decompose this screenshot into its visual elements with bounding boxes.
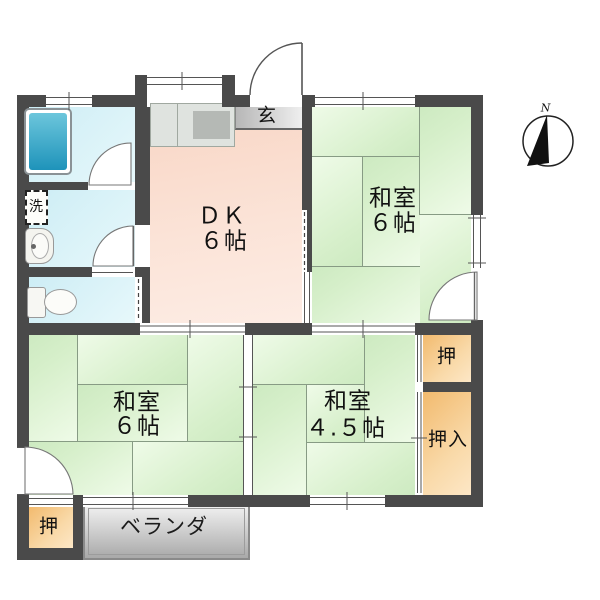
washroom-door-opening bbox=[135, 225, 150, 267]
window-veranda bbox=[83, 495, 188, 507]
tatami-mat bbox=[78, 335, 188, 385]
wall-segment bbox=[92, 95, 135, 107]
tatami-line bbox=[132, 442, 133, 495]
kitchen-sink bbox=[193, 111, 230, 139]
tatami-line bbox=[420, 214, 471, 215]
wall-segment bbox=[302, 95, 315, 107]
door-east-opening bbox=[471, 268, 483, 320]
wall-segment bbox=[222, 75, 235, 107]
washitsu-sw-size-label: ６帖 bbox=[113, 416, 161, 439]
closet-se-doors bbox=[415, 392, 423, 493]
tatami-line bbox=[77, 335, 78, 442]
tatami-mat bbox=[253, 385, 307, 495]
tatami-line bbox=[312, 266, 420, 267]
tatami-mat bbox=[188, 335, 243, 442]
floorplan: ＤＫ ６帖 和室 ６帖 和室 ６帖 和室 ４.５帖 押 押入 押 ベランダ 玄 … bbox=[0, 0, 600, 600]
wall-segment bbox=[135, 107, 150, 225]
closet-sw-doors bbox=[29, 495, 73, 507]
wall-segment bbox=[135, 267, 150, 277]
wall-segment bbox=[142, 277, 150, 323]
entrance-door-arc bbox=[250, 43, 302, 95]
tatami-line bbox=[419, 107, 420, 215]
dk-name-label: ＤＫ bbox=[198, 206, 246, 229]
toilet-entry bbox=[92, 267, 133, 277]
genkan-label: 玄 bbox=[257, 107, 277, 126]
tatami-mat bbox=[307, 443, 415, 495]
closet-se-label: 押入 bbox=[428, 431, 468, 450]
tatami-mat bbox=[312, 267, 420, 323]
washitsu-ne-size-label: ６帖 bbox=[369, 213, 417, 236]
bathroom-door-opening bbox=[88, 182, 135, 190]
wall-recess-toilet bbox=[135, 277, 142, 320]
toilet-bowl bbox=[44, 289, 77, 315]
compass-icon bbox=[523, 115, 573, 166]
wall-segment bbox=[302, 107, 312, 210]
tatami-line bbox=[29, 441, 243, 442]
fusuma-ne-se bbox=[312, 323, 415, 335]
tatami-mat bbox=[29, 335, 78, 442]
wall-segment bbox=[29, 267, 92, 277]
laundry-label: 洗 bbox=[29, 200, 44, 214]
tatami-mat bbox=[29, 442, 133, 495]
wall-segment bbox=[471, 95, 483, 215]
wall-segment bbox=[235, 95, 250, 107]
tatami-mat bbox=[420, 107, 471, 215]
closet-sw-label: 押 bbox=[39, 518, 59, 537]
wall-segment bbox=[29, 323, 140, 335]
tatami-line bbox=[362, 157, 363, 267]
tatami-line bbox=[312, 156, 420, 157]
washitsu-sw-name-label: 和室 bbox=[113, 392, 161, 415]
veranda-label: ベランダ bbox=[120, 517, 208, 538]
window-bathroom bbox=[46, 95, 92, 107]
closet-ne-doors bbox=[415, 335, 423, 382]
tatami-line bbox=[307, 442, 415, 443]
bathtub-water bbox=[29, 113, 67, 170]
wall-segment bbox=[73, 495, 83, 560]
fusuma-dk-ne bbox=[302, 272, 312, 323]
wall-segment bbox=[415, 323, 473, 335]
tatami-line bbox=[253, 384, 365, 385]
door-west-opening bbox=[17, 447, 29, 495]
tatami-line bbox=[78, 384, 188, 385]
window-east bbox=[471, 215, 483, 268]
wall-segment bbox=[29, 95, 46, 107]
wall-segment bbox=[471, 318, 483, 507]
wall-segment bbox=[307, 210, 312, 272]
compass-north-label: N bbox=[541, 103, 552, 114]
washitsu-ne-name-label: 和室 bbox=[369, 188, 417, 211]
fusuma-dk-sw bbox=[140, 323, 245, 335]
tatami-mat bbox=[133, 442, 243, 495]
washitsu-se-size-label: ４.５帖 bbox=[306, 418, 386, 441]
wall-segment bbox=[385, 495, 483, 507]
dk-size-label: ６帖 bbox=[200, 231, 248, 254]
window-washitsu-se bbox=[310, 495, 385, 507]
washbasin-faucet bbox=[31, 244, 36, 249]
tatami-mat bbox=[253, 335, 365, 385]
tatami-line bbox=[187, 335, 188, 442]
tatami-mat bbox=[312, 107, 420, 157]
counter-divider bbox=[177, 103, 178, 147]
tatami-mat bbox=[420, 215, 471, 323]
wall-segment bbox=[188, 495, 310, 507]
closet-ne-label: 押 bbox=[437, 348, 457, 367]
wall-segment bbox=[245, 323, 312, 335]
tatami-mat bbox=[312, 157, 363, 267]
wall-segment bbox=[29, 182, 88, 190]
washitsu-se-name-label: 和室 bbox=[324, 391, 372, 414]
window-washitsu-ne bbox=[315, 95, 415, 107]
fusuma-partition bbox=[243, 335, 253, 495]
wall-segment bbox=[423, 382, 473, 392]
wall-recess-dk bbox=[302, 210, 307, 272]
wall-segment bbox=[135, 75, 147, 107]
window-kitchen bbox=[147, 75, 222, 87]
